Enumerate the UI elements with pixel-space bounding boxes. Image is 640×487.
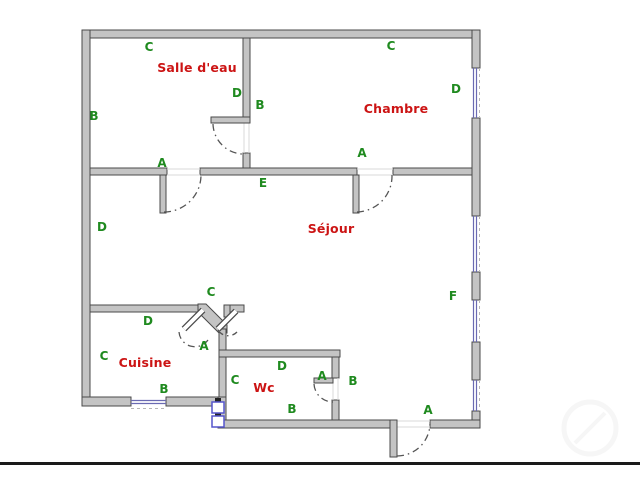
room-label-sejour: Séjour bbox=[308, 223, 355, 236]
dimension-label: C bbox=[387, 40, 396, 52]
door-leaf bbox=[211, 117, 250, 123]
dimension-label: B bbox=[89, 110, 98, 122]
room-label-wc: Wc bbox=[253, 382, 275, 395]
dimension-label: E bbox=[259, 177, 267, 189]
window bbox=[474, 216, 480, 272]
dimension-label: B bbox=[255, 99, 264, 111]
door-arc bbox=[314, 384, 333, 402]
entry-door-arc bbox=[397, 424, 430, 456]
dimension-label: D bbox=[97, 221, 107, 233]
floor-plan-drawing bbox=[0, 0, 640, 487]
room-label-salle-deau: Salle d'eau bbox=[157, 62, 237, 75]
floor-plan: Salle d'eau Chambre Séjour Cuisine Wc C … bbox=[0, 0, 640, 487]
door-leaf bbox=[353, 175, 359, 213]
bottom-border-line bbox=[0, 462, 640, 465]
windows bbox=[131, 68, 480, 411]
dimension-label: C bbox=[145, 41, 154, 53]
diagonal-door-leaf bbox=[184, 310, 203, 329]
dimension-label: A bbox=[317, 370, 326, 382]
dimension-label: A bbox=[357, 147, 366, 159]
window bbox=[474, 300, 480, 342]
dimension-label: A bbox=[199, 340, 208, 352]
door-arc bbox=[213, 124, 246, 154]
dimension-label: C bbox=[207, 286, 216, 298]
window bbox=[474, 380, 480, 411]
dimension-label: B bbox=[348, 375, 357, 387]
dimension-label: C bbox=[100, 350, 109, 362]
utility-fixture bbox=[212, 398, 224, 427]
entry-door-leaf bbox=[390, 420, 397, 457]
dimension-label: A bbox=[157, 157, 166, 169]
dimension-label: A bbox=[423, 404, 432, 416]
door-leaf bbox=[160, 175, 166, 213]
watermark bbox=[564, 402, 616, 454]
dimension-label: B bbox=[287, 403, 296, 415]
door-arc bbox=[357, 175, 392, 212]
dimension-label: D bbox=[143, 315, 153, 327]
dimension-label: C bbox=[231, 374, 240, 386]
room-label-cuisine: Cuisine bbox=[119, 357, 172, 370]
window bbox=[131, 401, 166, 409]
dimension-label: F bbox=[449, 290, 457, 302]
dimension-label: D bbox=[232, 87, 242, 99]
dimension-label: D bbox=[451, 83, 461, 95]
door-arc bbox=[164, 175, 201, 212]
dimension-label: D bbox=[277, 360, 287, 372]
dimension-label: B bbox=[159, 383, 168, 395]
room-label-chambre: Chambre bbox=[364, 103, 429, 116]
window bbox=[474, 68, 480, 118]
